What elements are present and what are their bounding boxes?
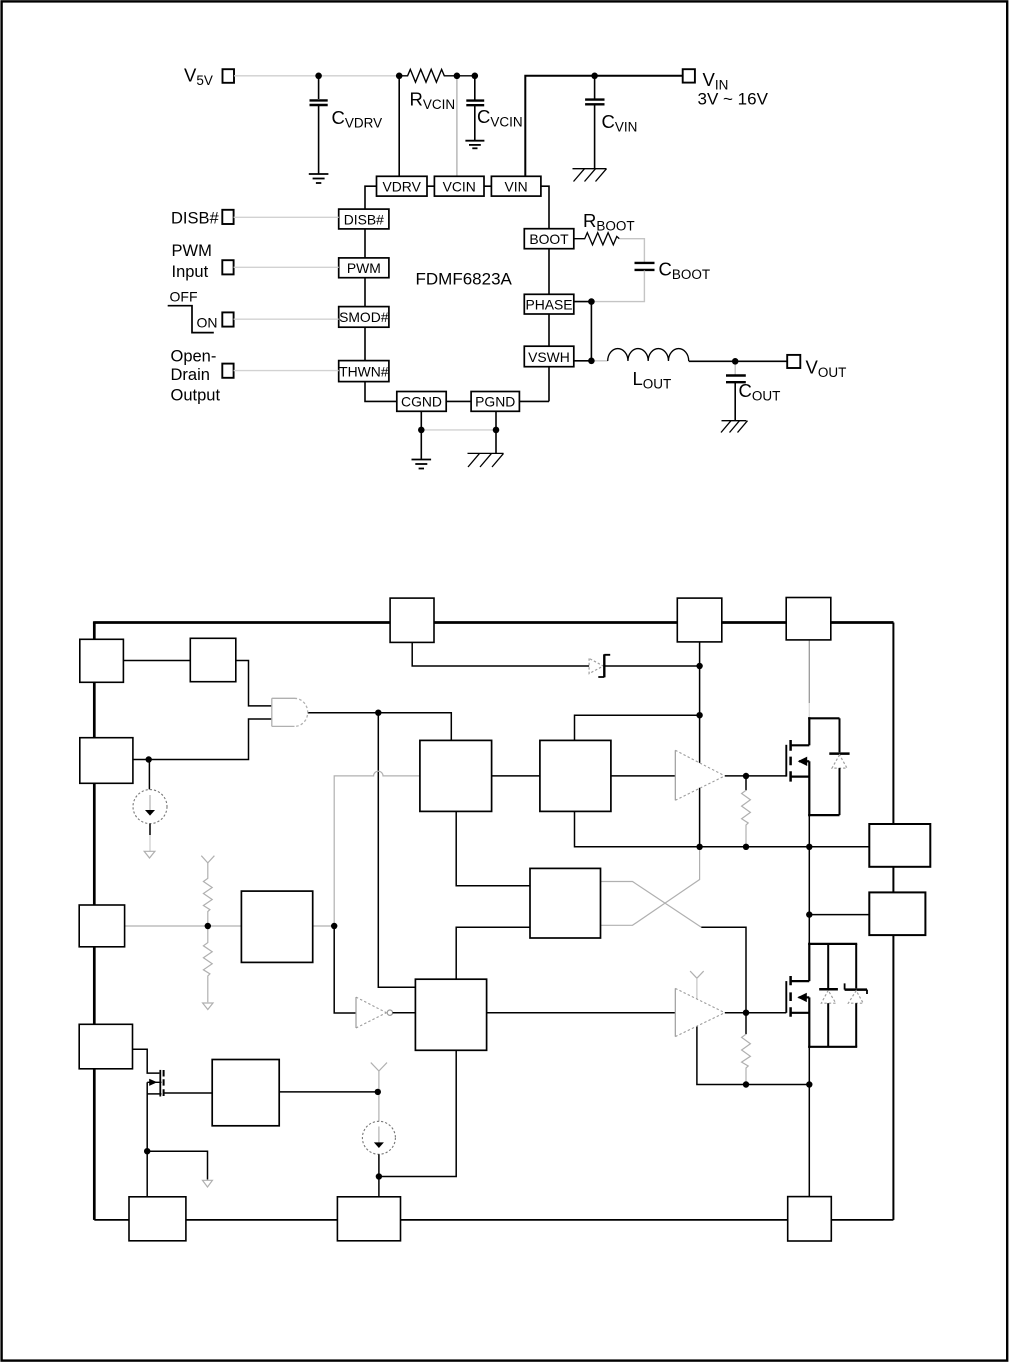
svg-text:SMOD#: SMOD# xyxy=(339,309,389,325)
svg-text:Drain: Drain xyxy=(171,366,210,384)
svg-text:VIN: VIN xyxy=(505,179,528,195)
svg-text:Open-: Open- xyxy=(171,347,217,365)
svg-text:CGND: CGND xyxy=(401,394,442,410)
svg-text:PGND: PGND xyxy=(475,394,515,410)
svg-text:THWN#: THWN# xyxy=(339,363,389,379)
svg-text:OFF: OFF xyxy=(170,288,198,304)
svg-text:VSWH: VSWH xyxy=(528,349,570,365)
svg-text:ON: ON xyxy=(197,315,218,331)
svg-text:BOOT: BOOT xyxy=(529,231,569,247)
svg-text:PWM: PWM xyxy=(347,260,381,276)
svg-text:VCIN: VCIN xyxy=(443,179,476,195)
svg-text:DISB#: DISB# xyxy=(344,211,384,227)
svg-text:Input: Input xyxy=(172,263,209,281)
svg-text:FDMF6823A: FDMF6823A xyxy=(416,270,513,289)
svg-text:VDRV: VDRV xyxy=(383,179,422,195)
svg-text:PHASE: PHASE xyxy=(525,296,572,312)
svg-text:DISB#: DISB# xyxy=(171,209,220,227)
svg-text:PWM: PWM xyxy=(172,242,212,260)
svg-text:Output: Output xyxy=(171,386,221,404)
svg-text:3V ~ 16V: 3V ~ 16V xyxy=(698,89,769,108)
